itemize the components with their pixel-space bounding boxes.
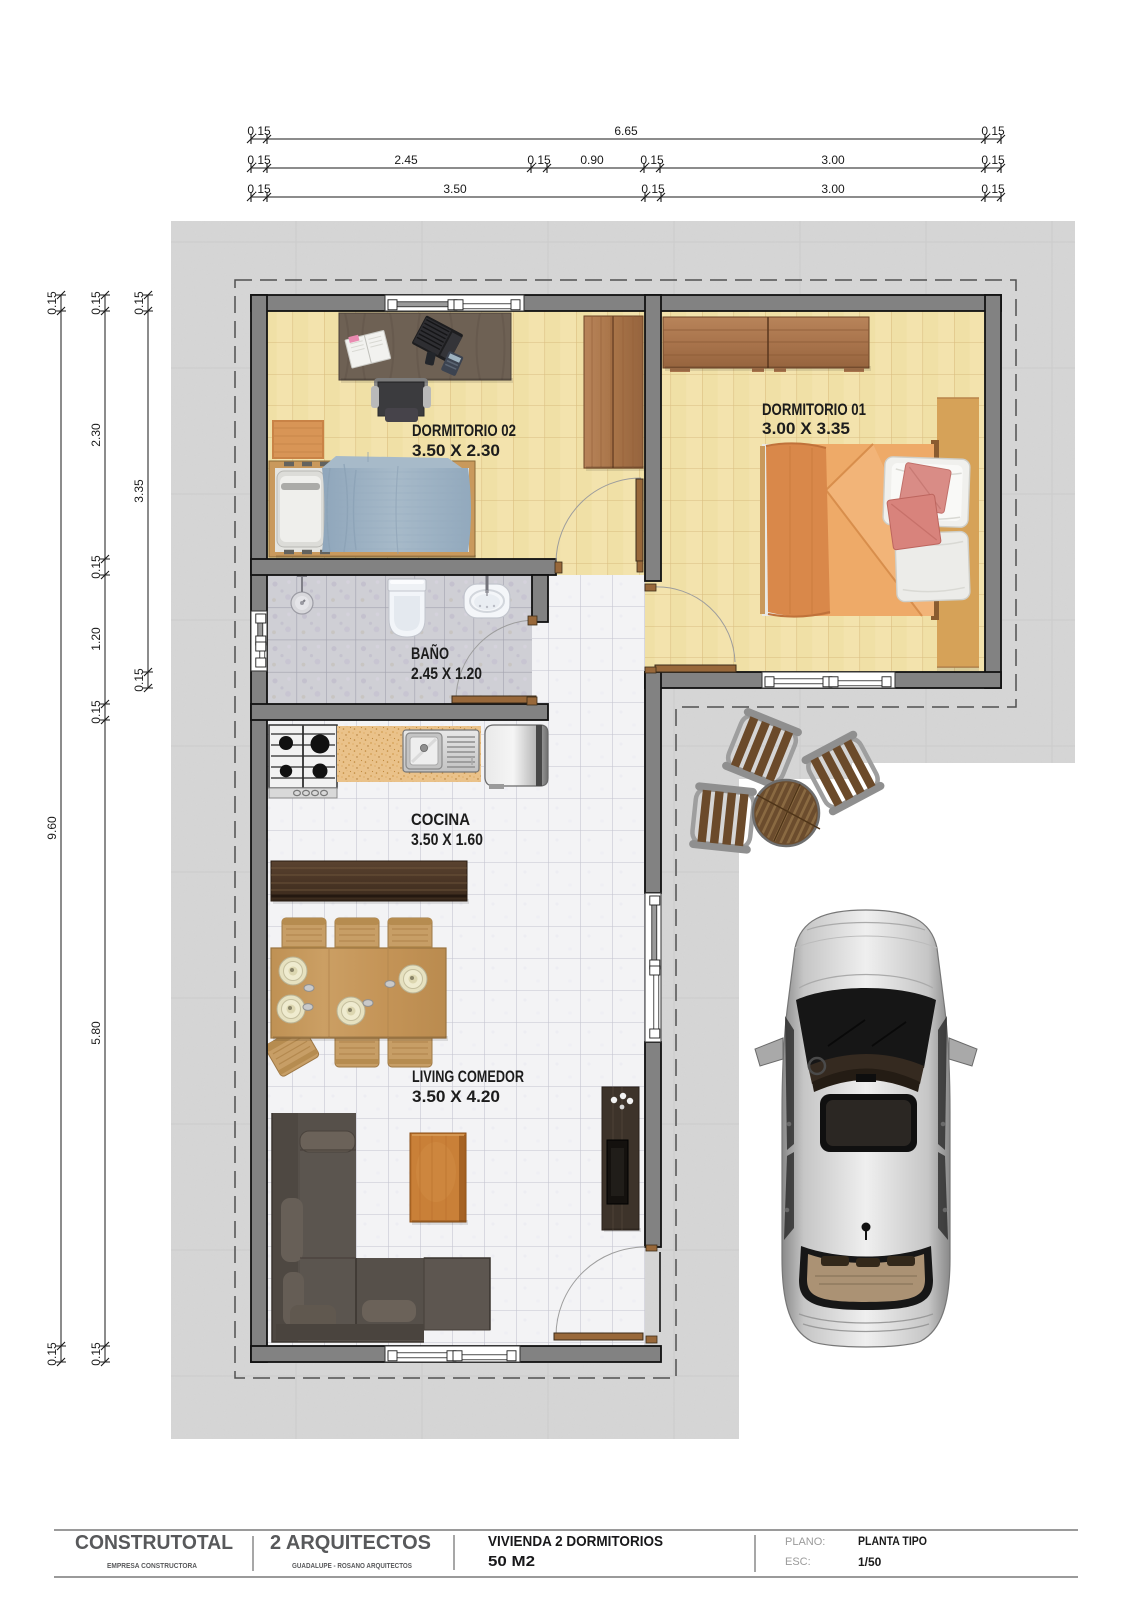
svg-text:0.15: 0.15 [89, 555, 103, 579]
svg-text:0.15: 0.15 [640, 153, 664, 167]
svg-text:5.80: 5.80 [89, 1021, 103, 1045]
svg-text:3.50 X 1.60: 3.50 X 1.60 [411, 830, 483, 849]
svg-text:0.15: 0.15 [641, 182, 665, 196]
svg-text:VIVIENDA 2 DORMITORIOS: VIVIENDA 2 DORMITORIOS [488, 1533, 663, 1550]
svg-text:3.50 X 4.20: 3.50 X 4.20 [412, 1087, 500, 1106]
svg-text:COCINA: COCINA [411, 810, 470, 829]
svg-text:0.15: 0.15 [527, 153, 551, 167]
svg-text:0.15: 0.15 [89, 700, 103, 724]
svg-text:0.15: 0.15 [45, 291, 59, 315]
svg-text:2.30: 2.30 [89, 423, 103, 447]
svg-text:9.60: 9.60 [45, 816, 59, 840]
svg-text:1/50: 1/50 [858, 1555, 882, 1569]
svg-text:0.15: 0.15 [45, 1342, 59, 1366]
svg-text:BAÑO: BAÑO [411, 643, 449, 663]
svg-text:0.15: 0.15 [89, 291, 103, 315]
svg-text:0.15: 0.15 [247, 182, 271, 196]
svg-text:0.15: 0.15 [247, 124, 271, 138]
svg-text:2 ARQUITECTOS: 2 ARQUITECTOS [270, 1532, 431, 1554]
svg-text:PLANTA TIPO: PLANTA TIPO [858, 1534, 927, 1548]
svg-text:0.15: 0.15 [247, 153, 271, 167]
svg-text:3.00 X 3.35: 3.00 X 3.35 [762, 419, 850, 438]
svg-text:1.20: 1.20 [89, 627, 103, 651]
svg-text:3.00: 3.00 [821, 153, 845, 167]
svg-text:0.15: 0.15 [132, 668, 146, 692]
svg-text:0.15: 0.15 [981, 124, 1005, 138]
svg-text:0.15: 0.15 [89, 1342, 103, 1366]
svg-text:DORMITORIO 01: DORMITORIO 01 [762, 400, 866, 419]
svg-text:3.00: 3.00 [821, 182, 845, 196]
svg-text:3.50 X 2.30: 3.50 X 2.30 [412, 441, 500, 460]
svg-text:2.45 X 1.20: 2.45 X 1.20 [411, 664, 482, 683]
svg-text:EMPRESA CONSTRUCTORA: EMPRESA CONSTRUCTORA [107, 1563, 197, 1570]
svg-text:0.15: 0.15 [981, 182, 1005, 196]
svg-text:0.90: 0.90 [580, 153, 604, 167]
svg-text:3.35: 3.35 [132, 479, 146, 503]
svg-text:DORMITORIO 02: DORMITORIO 02 [412, 421, 516, 440]
svg-text:PLANO:: PLANO: [785, 1536, 825, 1548]
svg-text:2.45: 2.45 [394, 153, 418, 167]
svg-text:3.50: 3.50 [443, 182, 467, 196]
svg-text:50 M2: 50 M2 [488, 1553, 535, 1570]
svg-text:CONSTRUTOTAL: CONSTRUTOTAL [75, 1532, 233, 1554]
svg-text:ESC:: ESC: [785, 1556, 811, 1568]
svg-text:0.15: 0.15 [132, 291, 146, 315]
svg-text:GUADALUPE - ROSANO ARQUITECTOS: GUADALUPE - ROSANO ARQUITECTOS [292, 1563, 412, 1570]
svg-text:0.15: 0.15 [981, 153, 1005, 167]
svg-text:LIVING COMEDOR: LIVING COMEDOR [412, 1067, 524, 1086]
svg-text:6.65: 6.65 [614, 124, 638, 138]
